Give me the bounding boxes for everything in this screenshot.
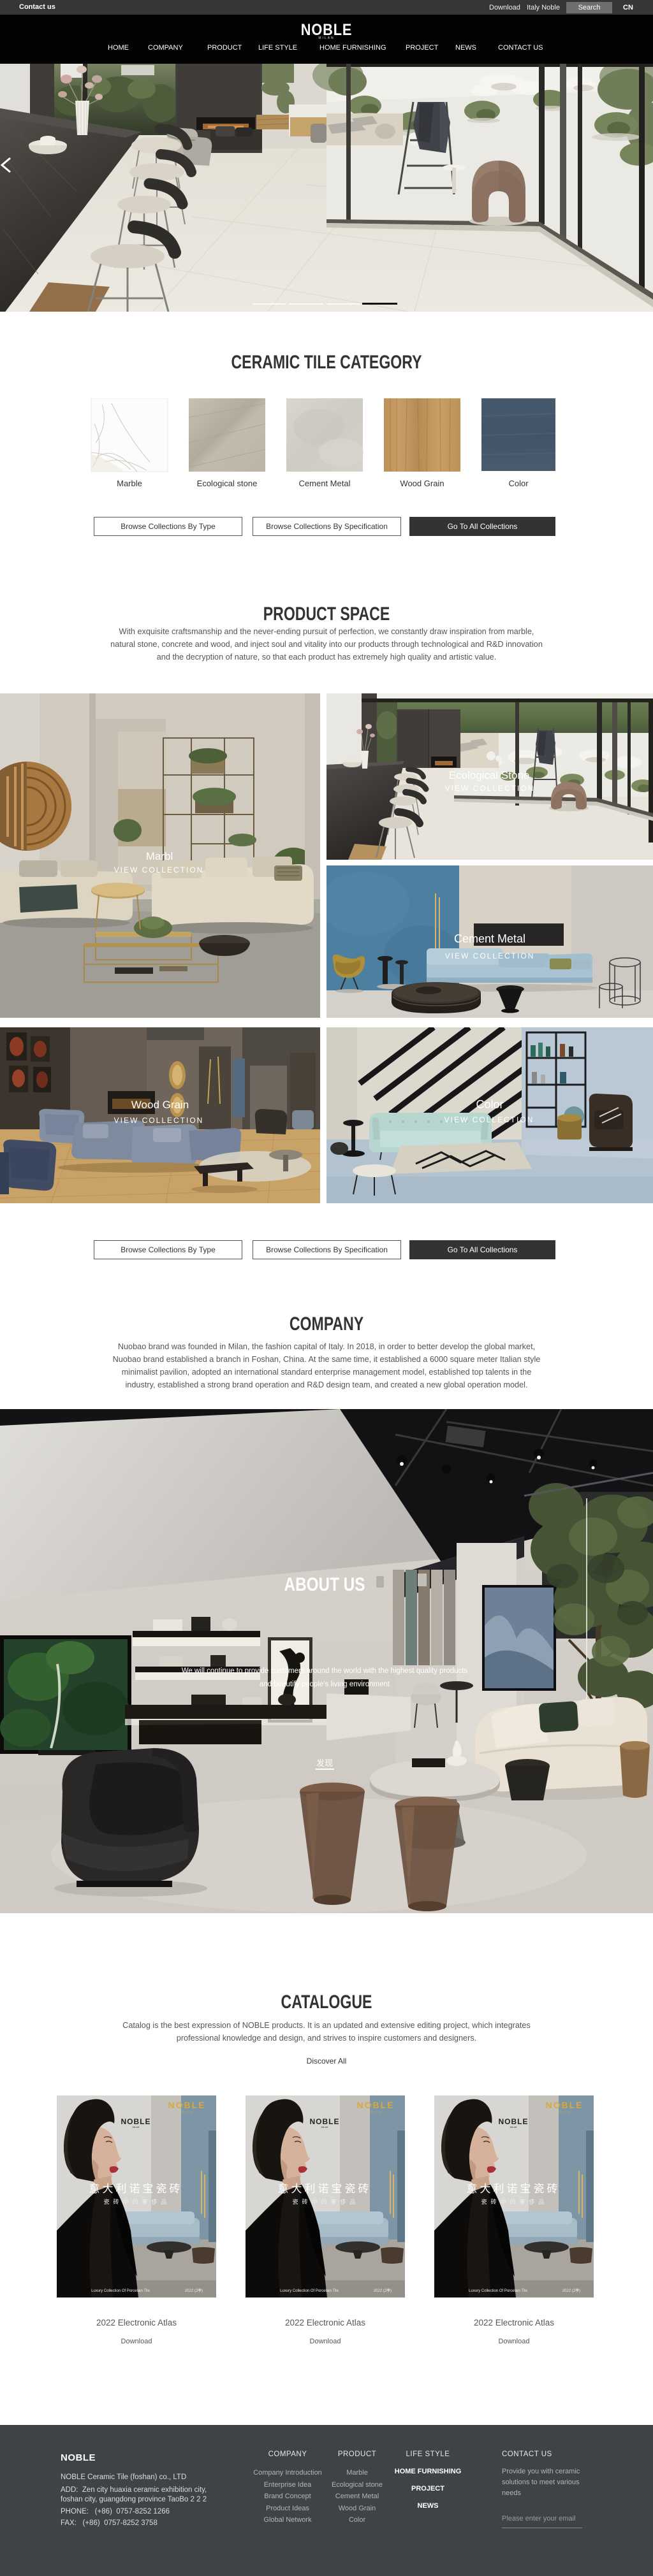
svg-text:Color: Color: [476, 1098, 503, 1111]
svg-text:MILAN: MILAN: [510, 2126, 517, 2129]
svg-text:意大利诺宝瓷砖: 意大利诺宝瓷砖: [278, 2183, 372, 2195]
svg-text:2022 (2季): 2022 (2季): [185, 2288, 203, 2293]
svg-text:VIEW COLLECTION: VIEW COLLECTION: [444, 1115, 534, 1124]
svg-text:NOBLE: NOBLE: [310, 2117, 340, 2126]
svg-text:2022 (2季): 2022 (2季): [374, 2288, 392, 2293]
svg-text:Marbl: Marbl: [146, 850, 173, 862]
svg-text:VIEW COLLECTION: VIEW COLLECTION: [445, 784, 535, 793]
svg-text:瓷砖中的奢侈品: 瓷砖中的奢侈品: [103, 2198, 170, 2205]
svg-text:Cement Metal: Cement Metal: [454, 932, 525, 945]
svg-text:MILAN: MILAN: [181, 2110, 192, 2113]
svg-text:VIEW COLLECTION: VIEW COLLECTION: [114, 1116, 204, 1125]
svg-text:Wood Grain: Wood Grain: [131, 1099, 189, 1111]
svg-text:2022 (2季): 2022 (2季): [562, 2288, 580, 2293]
svg-text:NOBLE: NOBLE: [546, 2100, 583, 2110]
svg-text:MILAN: MILAN: [133, 2126, 140, 2129]
svg-text:VIEW COLLECTION: VIEW COLLECTION: [445, 952, 535, 960]
svg-text:Color: Color: [508, 479, 529, 488]
svg-text:NOBLE: NOBLE: [357, 2100, 395, 2110]
svg-text:VIEW COLLECTION: VIEW COLLECTION: [114, 865, 204, 874]
svg-text:Wood Grain: Wood Grain: [400, 479, 444, 488]
svg-text:Marble: Marble: [117, 479, 142, 488]
svg-text:MILAN: MILAN: [370, 2110, 381, 2113]
svg-text:Ecological Stone: Ecological Stone: [449, 769, 530, 781]
svg-text:Luxury Collection Of Porcelain: Luxury Collection Of Porcelain Tile: [469, 2289, 527, 2293]
svg-text:MILAN: MILAN: [321, 2126, 328, 2129]
svg-text:意大利诺宝瓷砖: 意大利诺宝瓷砖: [89, 2183, 183, 2195]
svg-text:意大利诺宝瓷砖: 意大利诺宝瓷砖: [467, 2183, 561, 2195]
svg-text:Cement Metal: Cement Metal: [299, 479, 351, 488]
svg-text:NOBLE: NOBLE: [121, 2117, 151, 2126]
svg-text:Ecological stone: Ecological stone: [197, 479, 258, 488]
svg-text:Luxury Collection Of Porcelain: Luxury Collection Of Porcelain Tile: [91, 2289, 150, 2293]
svg-text:NOBLE: NOBLE: [168, 2100, 206, 2110]
svg-text:Luxury Collection Of Porcelain: Luxury Collection Of Porcelain Tile: [280, 2289, 339, 2293]
svg-text:NOBLE: NOBLE: [499, 2117, 529, 2126]
svg-text:瓷砖中的奢侈品: 瓷砖中的奢侈品: [292, 2198, 359, 2205]
svg-text:MILAN: MILAN: [559, 2110, 569, 2113]
svg-text:瓷砖中的奢侈品: 瓷砖中的奢侈品: [481, 2198, 548, 2205]
